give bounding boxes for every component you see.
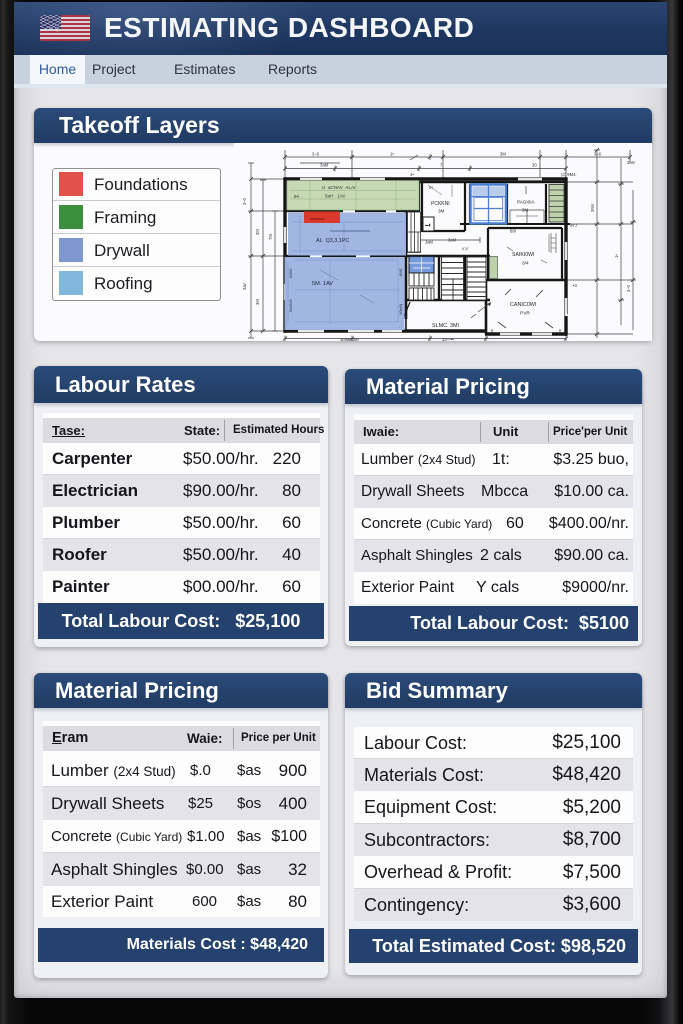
svg-text:8•i: 8•i <box>294 194 299 199</box>
svg-text:▬▮: ▬▮ <box>425 223 431 227</box>
svg-text:3M: 3M <box>255 229 260 235</box>
svg-text:3/4: 3/4 <box>522 261 529 267</box>
svg-text:rM0X: rM0X <box>288 268 293 278</box>
svg-text:(3) 9M4:: (3) 9M4: <box>561 172 577 177</box>
svg-text:3Mѵ: 3Mѵ <box>627 160 636 165</box>
svg-text:AL Q3,3,1PC: AL Q3,3,1PC <box>316 238 349 244</box>
svg-text:8M1: 8M1 <box>398 267 403 276</box>
svg-text:SAIKI0WI: SAIKI0WI <box>512 252 535 258</box>
svg-text:U aCNAV ALAr: U aCNAV ALAr <box>322 185 356 190</box>
svg-text:7M: 7M <box>268 234 273 240</box>
svg-text:3Mѵ: 3Mѵ <box>590 203 595 212</box>
svg-text:5M. 1AV: 5M. 1AV <box>312 281 333 287</box>
svg-text:33—••,: 33—••, <box>442 337 455 341</box>
svg-text:3–0: 3–0 <box>626 284 631 292</box>
svg-text:30: 30 <box>532 163 537 168</box>
svg-text:3M: 3M <box>500 152 506 157</box>
svg-text:▬▬▬▬: ▬▬▬▬ <box>310 217 325 221</box>
svg-text:3–6: 3–6 <box>594 152 602 157</box>
svg-text:3–6: 3–6 <box>312 152 320 157</box>
svg-text:PCKKNI: PCKKNI <box>431 201 450 207</box>
svg-text:3aM: 3aM <box>320 163 329 168</box>
svg-text:69І: 69І <box>510 229 516 234</box>
svg-text:1•: 1• <box>614 254 619 258</box>
svg-text:3ІaMІ.3MІ: 3ІaMІ.3MІ <box>340 337 359 341</box>
svg-text:PVR: PVR <box>520 311 530 317</box>
svg-text:ѵ,ѵ: ѵ,ѵ <box>462 246 469 251</box>
svg-text:3aѵ: 3aѵ <box>242 282 247 290</box>
svg-text:aѵ,І: aѵ,І <box>570 223 577 228</box>
svg-text:5aMV5: 5aMV5 <box>288 299 293 312</box>
svg-text:3M: 3M <box>255 299 260 305</box>
svg-text:5aH 1AV: 5aH 1AV <box>325 194 347 199</box>
svg-text:•3: •3 <box>573 283 577 288</box>
svg-text:3M: 3M <box>438 209 445 214</box>
svg-text:JaM: JaM <box>425 240 433 245</box>
svg-text:PAGI0IA: PAGI0IA <box>517 200 535 205</box>
svg-text:30br0j: 30br0j <box>398 304 403 315</box>
svg-text:3–0: 3–0 <box>242 197 247 205</box>
svg-text:SLMC. 3MI: SLMC. 3MI <box>432 323 459 329</box>
svg-text:III: III <box>429 185 433 190</box>
svg-text:1•: 1• <box>390 152 394 157</box>
svg-text:CANIC0WI: CANIC0WI <box>510 302 536 308</box>
svg-text:4•: 4• <box>410 172 414 177</box>
svg-text:3aM: 3aM <box>448 238 457 243</box>
